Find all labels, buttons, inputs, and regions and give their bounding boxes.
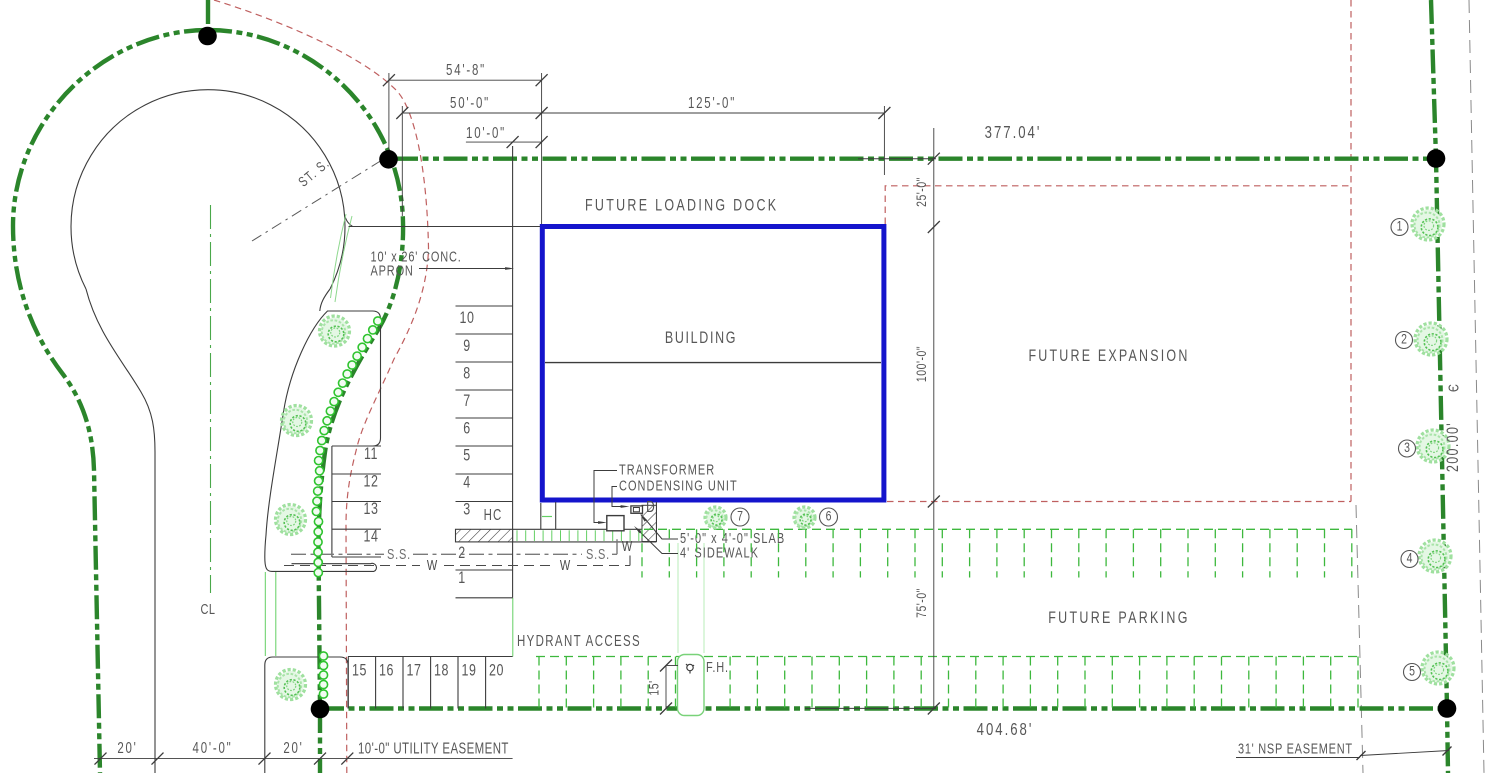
- svg-text:18: 18: [434, 662, 449, 680]
- svg-text:D: D: [646, 497, 655, 515]
- svg-text:10'-0" UTILITY EASEMENT: 10'-0" UTILITY EASEMENT: [358, 740, 509, 757]
- svg-text:54'-8": 54'-8": [446, 61, 486, 78]
- svg-text:200.00': 200.00': [1444, 422, 1462, 472]
- svg-text:S.S.: S.S.: [387, 545, 411, 562]
- svg-text:Є: Є: [1445, 384, 1462, 392]
- svg-text:100'-0": 100'-0": [914, 346, 930, 382]
- svg-text:4' SIDEWALK: 4' SIDEWALK: [680, 544, 759, 561]
- svg-text:14: 14: [364, 528, 379, 546]
- svg-text:BUILDING: BUILDING: [665, 329, 737, 347]
- svg-text:S.S.: S.S.: [586, 545, 610, 562]
- svg-text:75'-0": 75'-0": [914, 588, 930, 618]
- svg-text:19: 19: [462, 662, 477, 680]
- svg-text:125'-0": 125'-0": [688, 94, 736, 111]
- svg-text:11: 11: [364, 445, 378, 463]
- svg-text:6: 6: [463, 420, 470, 438]
- svg-text:W: W: [560, 556, 571, 573]
- svg-text:20': 20': [283, 739, 303, 756]
- svg-text:CONDENSING UNIT: CONDENSING UNIT: [619, 477, 738, 494]
- svg-text:1: 1: [1397, 218, 1403, 234]
- svg-text:13: 13: [364, 500, 379, 518]
- svg-text:FUTURE PARKING: FUTURE PARKING: [1048, 609, 1190, 627]
- svg-text:3: 3: [463, 501, 470, 519]
- svg-text:4: 4: [1407, 550, 1413, 566]
- svg-text:3: 3: [1404, 440, 1410, 456]
- svg-text:FUTURE EXPANSION: FUTURE EXPANSION: [1028, 347, 1189, 365]
- svg-text:TRANSFORMER: TRANSFORMER: [619, 461, 715, 478]
- svg-text:5: 5: [463, 447, 470, 465]
- svg-text:15: 15: [352, 662, 367, 680]
- svg-text:HC: HC: [484, 506, 503, 523]
- svg-text:15': 15': [646, 680, 662, 695]
- svg-text:4: 4: [463, 474, 470, 492]
- svg-text:1: 1: [458, 569, 465, 587]
- svg-text:APRON: APRON: [371, 262, 414, 279]
- svg-text:W: W: [427, 556, 438, 573]
- svg-text:16: 16: [379, 662, 394, 680]
- svg-text:31' NSP EASEMENT: 31' NSP EASEMENT: [1238, 740, 1353, 757]
- svg-text:6: 6: [826, 508, 832, 524]
- svg-text:10: 10: [460, 309, 475, 327]
- svg-text:HYDRANT ACCESS: HYDRANT ACCESS: [517, 632, 641, 649]
- svg-text:40'-0": 40'-0": [193, 739, 233, 756]
- svg-text:20: 20: [489, 662, 504, 680]
- svg-text:25'-0": 25'-0": [914, 177, 930, 207]
- svg-text:377.04': 377.04': [985, 123, 1042, 142]
- svg-text:2: 2: [458, 544, 465, 562]
- svg-text:7: 7: [737, 508, 743, 524]
- svg-text:404.68': 404.68': [977, 720, 1034, 739]
- svg-text:W: W: [622, 537, 633, 554]
- svg-text:9: 9: [463, 337, 470, 355]
- svg-text:10'-0": 10'-0": [466, 124, 506, 141]
- svg-text:50'-0": 50'-0": [450, 94, 490, 111]
- svg-text:20': 20': [117, 739, 137, 756]
- svg-text:F.H.: F.H.: [706, 658, 729, 675]
- svg-text:12: 12: [364, 473, 379, 491]
- svg-text:17: 17: [407, 662, 422, 680]
- svg-text:5: 5: [1409, 663, 1415, 679]
- svg-text:7: 7: [463, 392, 470, 410]
- svg-text:8: 8: [463, 365, 470, 383]
- svg-text:FUTURE LOADING DOCK: FUTURE LOADING DOCK: [585, 197, 778, 215]
- svg-text:CL: CL: [200, 600, 215, 617]
- svg-text:2: 2: [1401, 331, 1407, 347]
